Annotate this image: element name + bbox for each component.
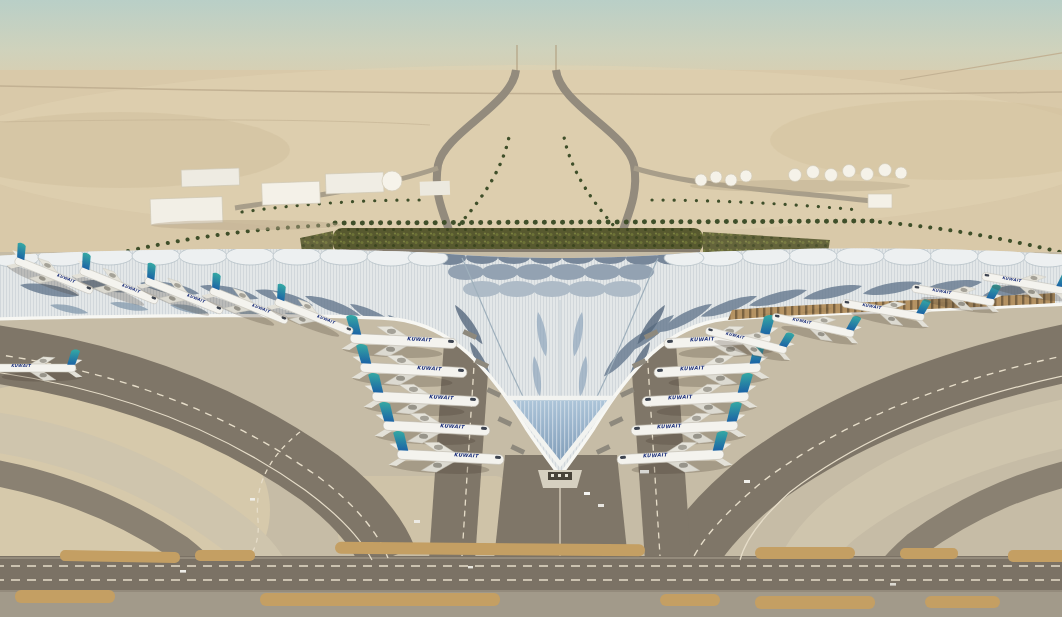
dome-building	[382, 171, 402, 191]
airport-aerial-rendering: Aerial rendering of Kuwait International…	[0, 0, 1062, 617]
scene-svg: KUWAIT KUWAIT	[0, 0, 1062, 617]
